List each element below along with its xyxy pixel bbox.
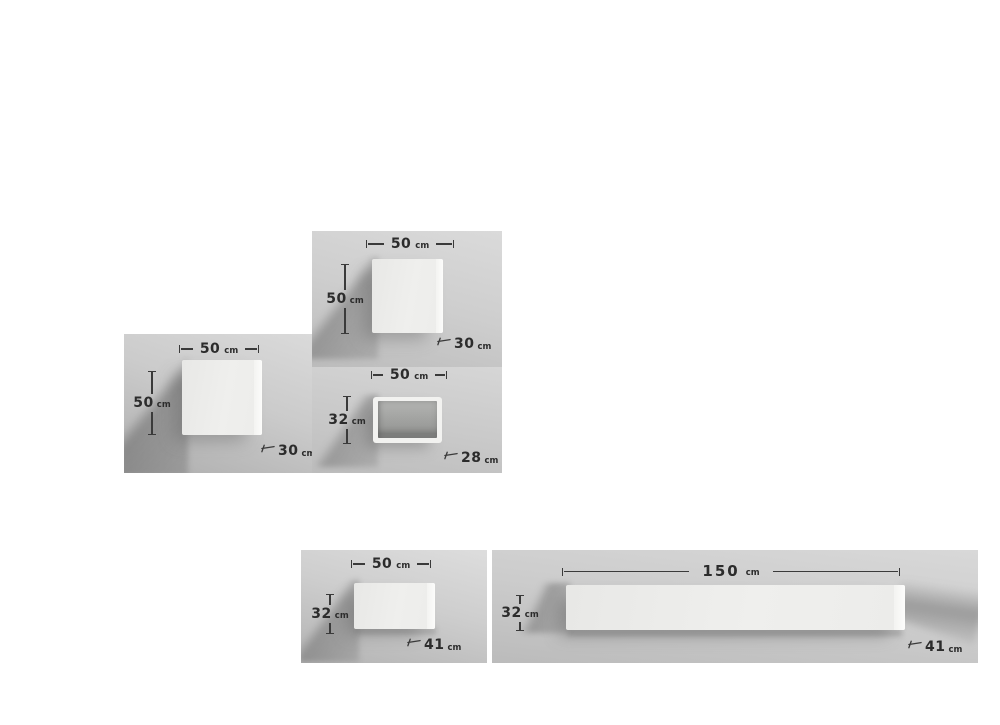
shelf-front-face [354, 583, 435, 629]
cube-front-face [182, 360, 262, 435]
dim-value: 30 [278, 444, 298, 458]
depth-arrow-icon [436, 335, 451, 347]
panel-cube-top: 50 cm 50 cm 30 cm [312, 231, 502, 367]
dim-line [344, 265, 346, 290]
dim-label: 32 cm [311, 607, 348, 621]
dim-tick [453, 240, 454, 248]
dim-label: 32 cm [501, 606, 538, 620]
dim-tick [341, 333, 349, 334]
dim-line [151, 412, 153, 434]
dim-line [519, 596, 521, 604]
dim-unit: cm [415, 242, 429, 251]
dim-value: 50 [200, 342, 220, 356]
dim-tick [516, 630, 524, 631]
dim-tick [351, 560, 352, 568]
dim-value: 41 [925, 640, 945, 654]
width-dimension: 50 cm [351, 557, 431, 571]
dim-value: 50 [133, 396, 153, 410]
dim-line [344, 308, 346, 333]
depth-dimension: 30 cm [260, 441, 312, 459]
depth-dimension: 30 cm [436, 334, 491, 352]
width-dimension: 150 cm [562, 564, 900, 579]
dim-value: 30 [454, 337, 474, 351]
page-canvas: { "colors": { "page_background": "#fffff… [0, 0, 1000, 725]
dim-unit: cm [746, 569, 760, 578]
panel-shelf-small: 50 cm 32 cm 41 cm [301, 550, 487, 663]
shelf-front-face [566, 585, 905, 630]
dim-line [181, 348, 193, 350]
cube-front-face [372, 259, 443, 333]
dim-value: 32 [311, 607, 331, 621]
dim-value: 50 [390, 368, 410, 382]
dim-tick [446, 371, 447, 379]
dim-unit: cm [525, 611, 539, 620]
dim-unit: cm [350, 297, 364, 306]
open-box-cavity [378, 401, 437, 438]
dim-label: 50 cm [133, 396, 170, 410]
dim-value: 41 [424, 638, 444, 652]
height-dimension: 50 cm [322, 264, 368, 334]
dim-tick [148, 434, 156, 435]
dim-tick [899, 568, 900, 576]
width-dimension: 50 cm [371, 368, 447, 382]
depth-dimension: 28 cm [443, 448, 498, 466]
dim-line [564, 571, 689, 573]
depth-arrow-icon [260, 442, 275, 454]
dim-unit: cm [948, 646, 962, 655]
dim-line [346, 429, 348, 443]
dim-label: 32 cm [328, 413, 365, 427]
dim-value: 150 [702, 564, 739, 579]
dim-unit: cm [224, 347, 238, 356]
dim-unit: cm [335, 612, 349, 621]
dim-tick [326, 633, 334, 634]
dim-value: 50 [326, 292, 346, 306]
depth-dimension: 41 cm [406, 635, 461, 653]
dim-line [346, 397, 348, 411]
dim-line [436, 243, 452, 245]
depth-dimension: 41 cm [907, 637, 962, 655]
height-dimension: 32 cm [325, 396, 369, 444]
dim-tick [371, 371, 372, 379]
dim-line [151, 372, 153, 394]
dim-unit: cm [484, 457, 498, 466]
width-dimension: 50 cm [366, 237, 454, 251]
dim-unit: cm [157, 401, 171, 410]
dim-line [245, 348, 257, 350]
dim-unit: cm [414, 373, 428, 382]
dim-line [373, 374, 383, 376]
dim-line [435, 374, 445, 376]
depth-arrow-icon [907, 638, 922, 650]
height-dimension: 50 cm [129, 371, 175, 435]
dim-line [773, 571, 898, 573]
dim-line [329, 623, 331, 633]
dim-value: 32 [328, 413, 348, 427]
dim-tick [562, 568, 563, 576]
dim-value: 32 [501, 606, 521, 620]
panel-shelf-long: 150 cm 32 cm 41 cm [492, 550, 978, 663]
dim-line [417, 563, 429, 565]
panel-open-box: 50 cm 32 cm 28 cm [312, 367, 502, 473]
dim-value: 28 [461, 451, 481, 465]
dim-tick [366, 240, 367, 248]
depth-arrow-icon [443, 449, 458, 461]
panel-cube-left: 50 cm 50 cm 30 cm [124, 334, 312, 473]
height-dimension: 32 cm [496, 595, 544, 631]
dim-line [519, 622, 521, 630]
dim-unit: cm [447, 644, 461, 653]
dim-tick [430, 560, 431, 568]
dim-line [329, 595, 331, 605]
dim-value: 50 [372, 557, 392, 571]
dim-tick [343, 443, 351, 444]
height-dimension: 32 cm [308, 594, 352, 634]
dim-unit: cm [352, 418, 366, 427]
dim-line [368, 243, 384, 245]
dim-unit: cm [301, 450, 312, 459]
dim-label: 50 cm [326, 292, 363, 306]
width-dimension: 50 cm [179, 342, 259, 356]
dim-tick [179, 345, 180, 353]
dim-tick [258, 345, 259, 353]
depth-arrow-icon [406, 636, 421, 648]
dim-line [353, 563, 365, 565]
open-box-frame [373, 397, 442, 443]
dim-value: 50 [391, 237, 411, 251]
dim-unit: cm [396, 562, 410, 571]
dim-unit: cm [477, 343, 491, 352]
